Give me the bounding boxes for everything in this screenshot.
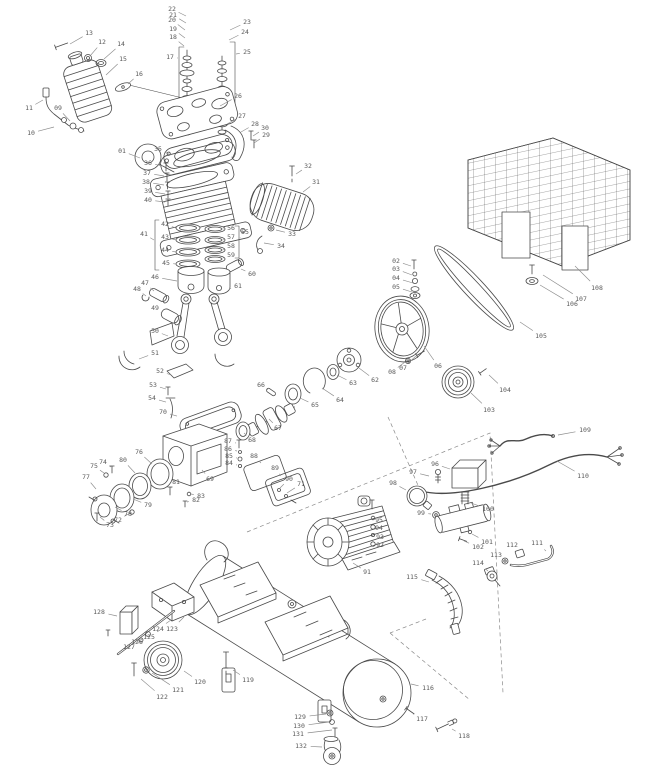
washer-85: [238, 457, 242, 461]
leader-line-104: [489, 375, 498, 383]
leader-line-31: [303, 186, 310, 192]
part-label-102: 102: [472, 543, 484, 551]
leader-line-110: [557, 461, 575, 471]
part-label-94: 94: [375, 524, 383, 532]
part-label-108: 108: [591, 284, 603, 292]
part-label-45: 45: [162, 259, 170, 267]
axle-bolt: [132, 663, 137, 676]
leader-line-04: [403, 280, 413, 283]
part-label-116: 116: [422, 684, 434, 692]
part-label-16: 16: [135, 70, 143, 78]
leader-line-51: [139, 356, 148, 359]
leader-line-63: [337, 375, 346, 380]
relief-valve-97: [435, 469, 440, 483]
part-label-88: 88: [250, 452, 258, 460]
part-label-83: 83: [197, 492, 205, 500]
part-label-44: 44: [161, 246, 169, 254]
part-label-92: 92: [376, 541, 384, 549]
part-label-67: 67: [274, 424, 282, 432]
leader-line-24: [229, 35, 238, 40]
leader-line-120: [184, 671, 192, 677]
check-valve-114: [484, 566, 500, 586]
part-label-112: 112: [506, 541, 518, 549]
part-label-129: 129: [294, 713, 306, 721]
screw-101: [468, 530, 471, 533]
nut-33: [268, 225, 274, 231]
filter-bolt: [55, 41, 69, 50]
aftercooler-bolt: [290, 166, 295, 182]
part-label-24: 24: [241, 28, 249, 36]
leader-line-100: [471, 503, 479, 506]
leader-line-14: [104, 49, 116, 59]
leader-line-10: [38, 127, 54, 131]
leader-line-15: [106, 64, 118, 75]
motor-bolt-95: [370, 500, 374, 509]
part-label-100: 100: [482, 505, 494, 513]
breather-plate-52: [167, 364, 193, 378]
screw-90: [278, 489, 281, 492]
shaft-key: [266, 387, 276, 396]
part-label-60: 60: [248, 270, 256, 278]
pipe-nut-112: [515, 549, 525, 558]
part-label-81: 81: [172, 478, 180, 486]
part-label-42: 42: [161, 220, 169, 228]
part-label-10: 10: [27, 129, 35, 137]
pulley-bolt: [478, 367, 487, 375]
nipple-100: [461, 492, 469, 504]
part-label-43: 43: [161, 233, 169, 241]
leader-line-11: [35, 100, 43, 104]
part-label-76: 76: [135, 448, 143, 456]
leader-line-54: [159, 400, 166, 402]
guard-bolt-107: [530, 265, 535, 274]
part-label-27: 27: [238, 112, 246, 120]
leader-line-05: [403, 289, 412, 292]
pressure-switch: [452, 460, 486, 488]
leader-line-70: [170, 414, 177, 416]
part-label-52: 52: [156, 367, 164, 375]
part-label-12: 12: [98, 38, 106, 46]
part-label-01: 01: [118, 147, 126, 155]
leader-line-115: [421, 580, 429, 582]
leader-line-65: [300, 398, 308, 402]
plate-128: [120, 606, 138, 634]
wire-harness-upper: [488, 435, 555, 455]
part-label-05: 05: [392, 283, 400, 291]
part-label-111: 111: [531, 539, 543, 547]
manifold: [432, 498, 493, 539]
part-label-36: 36: [144, 159, 152, 167]
part-label-128: 128: [93, 608, 105, 616]
part-label-37: 37: [143, 169, 151, 177]
leader-line-41: [150, 238, 154, 240]
exploded-parts-diagram: 0102030405060708091011121314151617181920…: [0, 0, 646, 768]
guard-washer-106: [526, 278, 538, 285]
wheel: [144, 641, 182, 679]
leader-line-32: [296, 170, 302, 174]
part-label-118: 118: [458, 732, 470, 740]
part-label-72: 72: [114, 516, 122, 524]
part-label-131: 131: [292, 730, 304, 738]
part-label-41: 41: [140, 230, 148, 238]
part-label-62: 62: [371, 376, 379, 384]
part-label-86: 86: [224, 445, 232, 453]
part-label-54: 54: [148, 394, 156, 402]
electric-motor: [307, 496, 400, 570]
leader-line-64: [322, 388, 334, 396]
leader-line-75: [100, 470, 104, 473]
part-label-114: 114: [472, 559, 484, 567]
part-label-58: 58: [227, 242, 235, 250]
part-label-95: 95: [375, 516, 383, 524]
part-label-115: 115: [406, 573, 418, 581]
part-label-11: 11: [25, 104, 33, 112]
part-label-78: 78: [124, 510, 132, 518]
leader-line-18: [179, 42, 184, 46]
leader-line-132: [311, 746, 322, 747]
leader-line-131: [308, 730, 332, 733]
leader-line-22: [179, 12, 186, 16]
retaining-ring-64: [303, 368, 325, 393]
part-label-79: 79: [144, 501, 152, 509]
leader-line-13: [70, 37, 83, 44]
part-label-127: 127: [123, 643, 135, 651]
wire-harness-lower: [414, 447, 623, 494]
part-label-13: 13: [85, 29, 93, 37]
leader-line-76: [144, 457, 152, 464]
part-label-130: 130: [293, 722, 305, 730]
wrist-pin: [148, 287, 170, 304]
leader-line-21: [179, 19, 186, 23]
leader-line-19: [179, 33, 185, 38]
leader-line-71: [287, 488, 295, 493]
screw-102: [458, 537, 467, 544]
leader-line-124: [166, 620, 171, 623]
part-label-125: 125: [143, 633, 155, 641]
leader-line-06: [424, 346, 434, 360]
part-label-104: 104: [499, 386, 511, 394]
part-label-71: 71: [297, 480, 305, 488]
cylinder: [145, 161, 252, 258]
leader-line-105: [520, 322, 533, 331]
leader-line-03: [403, 272, 412, 275]
leader-line-34: [264, 243, 274, 245]
part-label-55: 55: [241, 228, 249, 236]
part-label-91: 91: [363, 568, 371, 576]
part-label-22: 22: [168, 5, 176, 13]
part-label-51: 51: [151, 349, 159, 357]
leader-line-130: [309, 722, 329, 725]
part-label-09: 09: [54, 104, 62, 112]
leader-line-103: [471, 393, 482, 403]
part-label-08: 08: [388, 368, 396, 376]
part-label-84: 84: [225, 459, 233, 467]
leader-line-101: [472, 534, 478, 537]
aftercooler: [246, 179, 319, 235]
leader-line-37: [154, 174, 164, 176]
case-bolt-87: [237, 440, 241, 448]
part-label-119: 119: [242, 676, 254, 684]
part-label-89: 89: [271, 464, 279, 472]
part-label-38: 38: [142, 178, 150, 186]
leader-line-02: [403, 263, 411, 266]
part-label-40: 40: [144, 196, 152, 204]
part-label-107: 107: [575, 295, 587, 303]
leader-line-30: [253, 132, 259, 136]
leader-line-60: [241, 269, 245, 271]
pressure-gauge: [407, 486, 432, 510]
part-label-23: 23: [243, 18, 251, 26]
part-label-39: 39: [144, 187, 152, 195]
leader-line-33: [276, 230, 285, 232]
braided-hose: [425, 569, 462, 634]
spacer-63: [327, 365, 339, 380]
part-label-17: 17: [166, 53, 174, 61]
part-label-96: 96: [431, 460, 439, 468]
part-label-02: 02: [392, 257, 400, 265]
exploded-view-drawing: 0102030405060708091011121314151617181920…: [0, 0, 646, 768]
part-label-90: 90: [285, 475, 293, 483]
part-label-124: 124: [152, 625, 164, 633]
part-label-61: 61: [234, 282, 242, 290]
part-label-93: 93: [376, 533, 384, 541]
part-label-50: 50: [151, 327, 159, 335]
part-label-117: 117: [416, 715, 428, 723]
part-label-15: 15: [119, 55, 127, 63]
washer-75: [104, 473, 108, 477]
part-label-123: 123: [166, 625, 178, 633]
leader-line-83: [191, 494, 194, 495]
part-label-14: 14: [117, 40, 125, 48]
flywheel: [371, 293, 434, 366]
flywheel-bolt-set: [410, 260, 420, 299]
leader-line-109: [558, 432, 575, 435]
part-label-26: 26: [234, 92, 242, 100]
part-label-30: 30: [261, 124, 269, 132]
part-label-121: 121: [172, 686, 184, 694]
leader-line-79: [133, 499, 141, 502]
piston-left: [178, 267, 204, 294]
part-label-68: 68: [248, 436, 256, 444]
air-filter: [55, 41, 132, 125]
motor-pulley: [442, 366, 474, 398]
connecting-rod-right: [209, 294, 232, 346]
part-label-63: 63: [349, 379, 357, 387]
cylinder-head: [155, 84, 240, 141]
leader-line-25: [236, 53, 240, 54]
part-label-66: 66: [257, 381, 265, 389]
part-label-18: 18: [169, 33, 177, 41]
part-label-120: 120: [194, 678, 206, 686]
part-label-73: 73: [106, 521, 114, 529]
part-label-06: 06: [434, 362, 442, 370]
part-label-70: 70: [159, 408, 167, 416]
leader-line-106: [540, 285, 564, 299]
part-label-31: 31: [312, 178, 320, 186]
part-label-57: 57: [227, 233, 235, 241]
part-label-110: 110: [577, 472, 589, 480]
part-label-04: 04: [392, 274, 400, 282]
part-label-98: 98: [389, 479, 397, 487]
part-label-77: 77: [82, 473, 90, 481]
leader-line-46: [162, 278, 177, 281]
leader-line-88: [259, 461, 261, 463]
bolt-74: [110, 466, 114, 473]
small-bolt: [106, 630, 110, 636]
wheel-bracket: [152, 583, 194, 621]
leader-line-107: [543, 275, 573, 294]
part-label-65: 65: [311, 401, 319, 409]
part-label-105: 105: [535, 332, 547, 340]
part-label-32: 32: [304, 162, 312, 170]
part-label-85: 85: [225, 452, 233, 460]
washer-83: [187, 492, 191, 496]
part-label-53: 53: [149, 381, 157, 389]
part-label-103: 103: [483, 406, 495, 414]
part-label-132: 132: [295, 742, 307, 750]
part-label-64: 64: [336, 396, 344, 404]
nut-84: [238, 464, 241, 467]
leader-line-62: [359, 368, 369, 376]
head-bolts: [249, 131, 256, 148]
leader-line-77: [91, 483, 96, 489]
part-label-80: 80: [119, 456, 127, 464]
leader-line-111: [544, 549, 546, 551]
piston-right: [208, 268, 230, 294]
part-label-56: 56: [227, 224, 235, 232]
part-label-46: 46: [151, 273, 159, 281]
leader-line-116: [411, 684, 419, 686]
part-label-29: 29: [262, 131, 270, 139]
leader-line-97: [420, 474, 429, 476]
screw-71: [285, 495, 288, 498]
leader-line-16: [128, 79, 134, 84]
drain-valve-118: [436, 718, 458, 732]
part-label-122: 122: [156, 693, 168, 701]
bearing-65: [285, 384, 301, 404]
part-label-109: 109: [579, 426, 591, 434]
bracket-41: [155, 220, 159, 270]
leader-line-118: [452, 729, 456, 731]
part-label-48: 48: [133, 285, 141, 293]
leader-line-128: [108, 614, 117, 616]
part-label-34: 34: [277, 242, 285, 250]
washer-86: [239, 451, 242, 454]
part-label-03: 03: [392, 265, 400, 273]
leader-line-23: [230, 25, 240, 30]
part-label-33: 33: [288, 230, 296, 238]
leader-line-98: [399, 486, 406, 490]
bolt-82: [183, 501, 187, 507]
leader-line-53: [160, 387, 166, 389]
part-label-87: 87: [224, 437, 232, 445]
bolt-81: [168, 487, 172, 495]
leader-line-12: [90, 48, 97, 56]
leader-line-96: [442, 466, 450, 469]
hub-flange-62: [337, 348, 361, 372]
part-label-75: 75: [90, 462, 98, 470]
air-tank: [177, 541, 411, 727]
leader-line-80: [128, 465, 135, 473]
bearing-shells: [119, 351, 234, 370]
leader-line-90: [280, 484, 284, 488]
pipe-nut-113: [502, 558, 508, 564]
leader-line-28: [241, 128, 249, 132]
part-label-49: 49: [151, 304, 159, 312]
leader-line-122: [141, 679, 155, 691]
belt-guard: [468, 138, 630, 270]
bolt-53: [166, 387, 170, 395]
part-label-35: 35: [154, 145, 162, 153]
part-label-74: 74: [99, 458, 107, 466]
part-label-99: 99: [417, 509, 425, 517]
part-label-97: 97: [409, 468, 417, 476]
part-label-69: 69: [206, 475, 214, 483]
part-label-113: 113: [490, 551, 502, 559]
part-label-47: 47: [141, 279, 149, 287]
part-label-25: 25: [243, 48, 251, 56]
elbow-34: [257, 236, 262, 250]
part-label-59: 59: [227, 251, 235, 259]
leader-line-20: [178, 24, 185, 30]
part-label-28: 28: [251, 120, 259, 128]
part-label-19: 19: [169, 25, 177, 33]
